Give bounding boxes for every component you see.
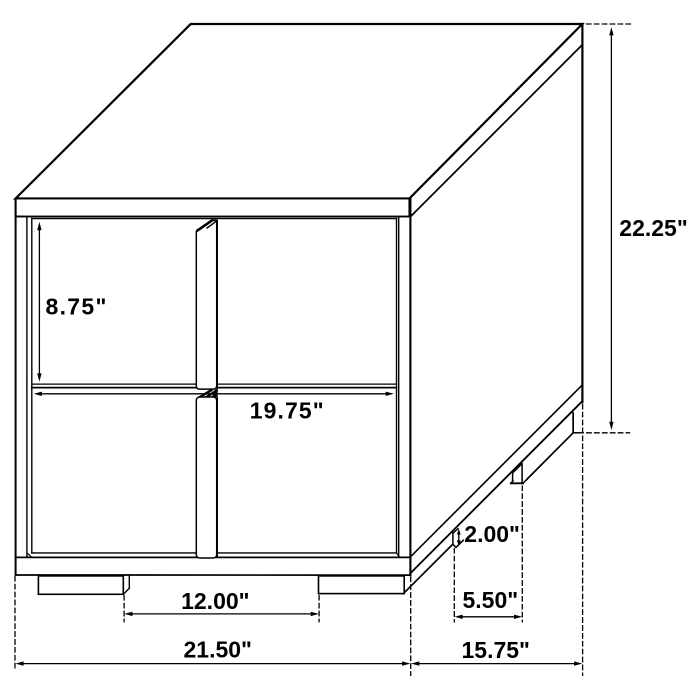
svg-text:19.75": 19.75" [250, 397, 325, 423]
svg-text:15.75": 15.75" [462, 637, 530, 663]
svg-text:2.00": 2.00" [464, 521, 520, 547]
svg-text:12.00": 12.00" [181, 588, 249, 614]
svg-text:5.50": 5.50" [463, 587, 519, 613]
svg-text:21.50": 21.50" [184, 637, 252, 663]
svg-text:22.25": 22.25" [619, 215, 687, 241]
svg-text:8.75": 8.75" [46, 294, 108, 320]
